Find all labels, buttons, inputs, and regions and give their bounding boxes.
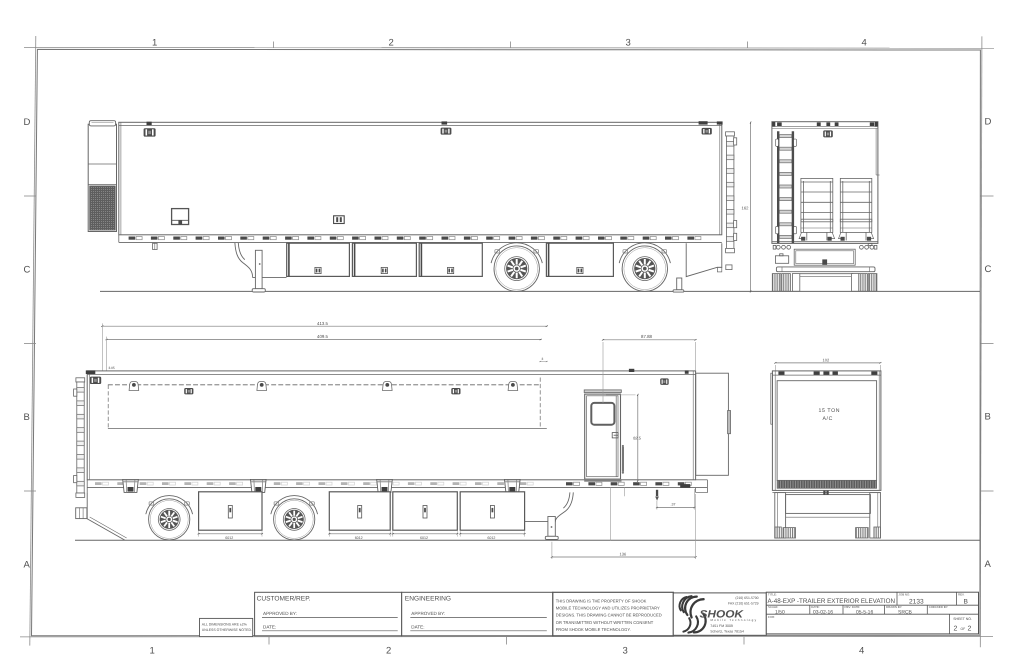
svg-text:2133: 2133 — [909, 598, 924, 605]
svg-text:ALL DIMENSIONS ARE ±2%: ALL DIMENSIONS ARE ±2% — [202, 622, 247, 626]
svg-text:DESIGNS. THIS DRAWING CANNOT: DESIGNS. THIS DRAWING CANNOT BE REPRODUC… — [556, 613, 662, 618]
svg-text:Schertz, Texas 78154: Schertz, Texas 78154 — [710, 630, 744, 634]
svg-text:6012: 6012 — [487, 536, 495, 540]
svg-text:FOR:: FOR: — [768, 615, 775, 619]
svg-text:THIS DRAWING IS THE PROPERTY O: THIS DRAWING IS THE PROPERTY OF SHOOK — [556, 599, 647, 604]
svg-text:3: 3 — [623, 646, 628, 657]
svg-text:03-02-16: 03-02-16 — [813, 609, 833, 615]
svg-text:DATE:: DATE: — [263, 624, 276, 629]
svg-text:3: 3 — [542, 357, 544, 361]
svg-text:3: 3 — [626, 38, 631, 49]
svg-text:136: 136 — [620, 551, 627, 556]
svg-text:B: B — [985, 412, 991, 423]
svg-text:162: 162 — [742, 206, 750, 211]
svg-text:C: C — [24, 265, 31, 276]
svg-text:JOB NO.: JOB NO. — [899, 593, 911, 597]
svg-text:REV.: REV. — [958, 593, 965, 597]
svg-text:87.88: 87.88 — [641, 334, 653, 339]
svg-text:SRCB: SRCB — [898, 610, 913, 616]
svg-text:A: A — [985, 559, 992, 570]
svg-text:4: 4 — [862, 38, 867, 49]
svg-text:B: B — [964, 599, 969, 606]
svg-text:UNLESS OTHERWISE NOTED.: UNLESS OTHERWISE NOTED. — [202, 628, 252, 632]
svg-text:CHECKED BY:: CHECKED BY: — [929, 605, 949, 609]
svg-text:D: D — [985, 117, 992, 128]
svg-text:6012: 6012 — [355, 536, 363, 540]
svg-text:4: 4 — [859, 646, 864, 657]
svg-text:409.5: 409.5 — [317, 334, 329, 339]
svg-text:C: C — [985, 264, 992, 275]
svg-text:(210) 651-5700: (210) 651-5700 — [735, 596, 758, 600]
svg-text:FROM SHOOK MOBILE TECHNOLOGY.: FROM SHOOK MOBILE TECHNOLOGY. — [556, 627, 631, 632]
svg-text:DATE:: DATE: — [411, 624, 424, 629]
svg-text:FAX (210) 651-5729: FAX (210) 651-5729 — [728, 602, 759, 606]
svg-text:7451 FM 3009: 7451 FM 3009 — [710, 624, 733, 628]
svg-text:ENGINEERING: ENGINEERING — [405, 595, 451, 602]
svg-text:1: 1 — [150, 646, 155, 657]
svg-text:.37: .37 — [671, 502, 676, 506]
svg-text:6012: 6012 — [225, 536, 233, 540]
svg-text:05-5-16: 05-5-16 — [856, 609, 873, 615]
svg-text:OF: OF — [961, 627, 966, 631]
svg-text:102: 102 — [823, 357, 830, 362]
svg-text:DRAWN BY:: DRAWN BY: — [886, 605, 902, 609]
svg-text:OR TRANSMITTED WITHOUT WRITTEN: OR TRANSMITTED WITHOUT WRITTEN CONSENT — [556, 620, 654, 625]
svg-text:15 TON: 15 TON — [819, 408, 841, 414]
svg-text:APPROVED BY:: APPROVED BY: — [263, 611, 297, 616]
svg-text:2: 2 — [386, 646, 391, 657]
svg-text:82.5: 82.5 — [633, 436, 642, 441]
svg-text:413.5: 413.5 — [317, 321, 329, 326]
svg-text:3.05: 3.05 — [109, 366, 115, 370]
svg-text:TITLE:: TITLE: — [768, 593, 777, 597]
svg-text:6012: 6012 — [420, 536, 428, 540]
svg-text:APPROVED BY:: APPROVED BY: — [411, 611, 445, 616]
svg-text:D: D — [24, 117, 31, 128]
svg-text:2: 2 — [954, 626, 958, 633]
svg-text:SHEET NO.: SHEET NO. — [953, 617, 972, 621]
svg-text:B: B — [24, 412, 30, 423]
svg-text:CUSTOMER/REP.: CUSTOMER/REP. — [257, 595, 311, 602]
svg-text:2: 2 — [389, 38, 394, 49]
svg-text:2: 2 — [968, 626, 972, 633]
svg-text:Mobile Technology: Mobile Technology — [711, 618, 758, 622]
svg-text:1/50: 1/50 — [775, 609, 785, 615]
svg-text:1: 1 — [152, 38, 157, 49]
svg-text:A: A — [24, 560, 31, 571]
svg-text:A/C: A/C — [823, 416, 833, 422]
svg-text:A-48-EXP -TRAILER EXTERIOR ELE: A-48-EXP -TRAILER EXTERIOR ELEVATION — [768, 598, 896, 605]
svg-text:MOBILE TECHNOLOGY AND UTILIZES: MOBILE TECHNOLOGY AND UTILIZES PROPRIETA… — [556, 606, 660, 611]
